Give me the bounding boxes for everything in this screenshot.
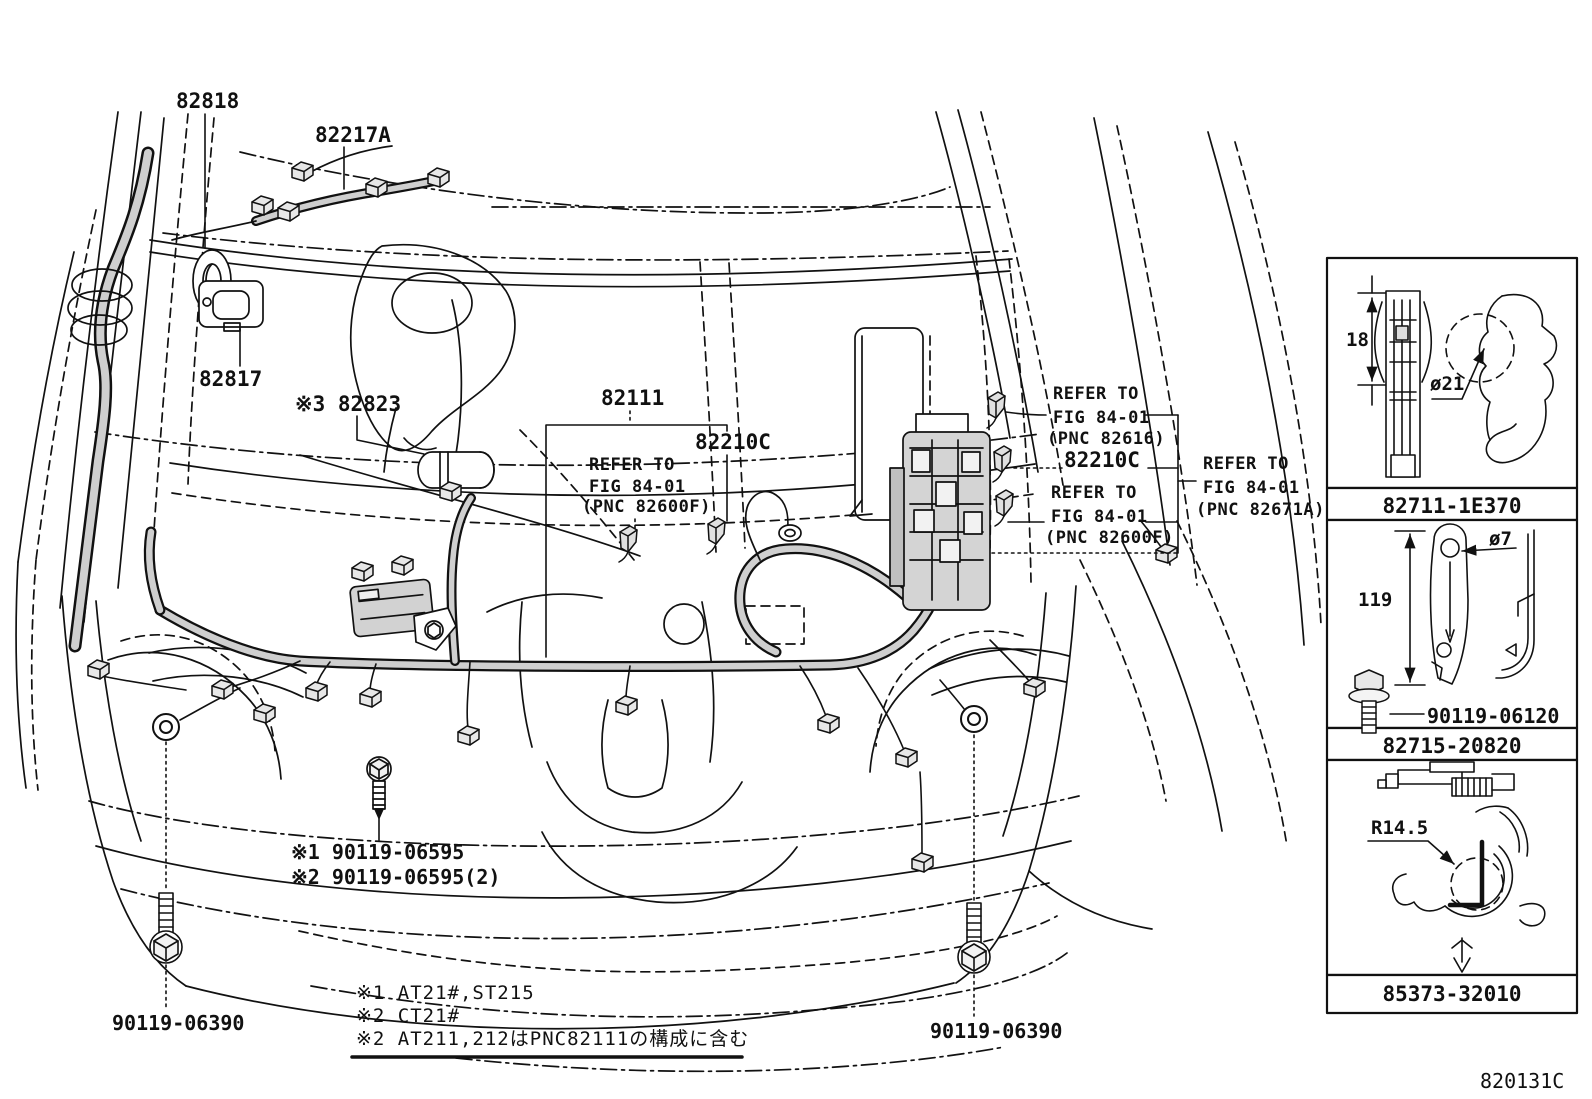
callout-82817: 82817 xyxy=(199,368,262,390)
connector-cube xyxy=(360,688,381,707)
ground-screw-right xyxy=(958,903,990,973)
ground-ring-left xyxy=(153,714,179,740)
refer-center-line3: (PNC 82600F) xyxy=(582,499,711,517)
ground-screw-left xyxy=(150,893,182,963)
connector-cube xyxy=(818,714,839,733)
clamp-82823 xyxy=(418,452,494,488)
dim-r145: R14.5 xyxy=(1371,819,1428,839)
panel-label-82715: 82715-20820 xyxy=(1327,734,1577,758)
dim-o21: ø21 xyxy=(1430,375,1464,395)
footnote-1: ※1 AT21#,ST215 xyxy=(356,984,535,1004)
connector-cube xyxy=(392,556,413,575)
connector-cube xyxy=(212,680,233,699)
page-code: 820131C xyxy=(1480,1071,1564,1092)
footnote-2: ※2 CT21# xyxy=(356,1007,460,1027)
connector-cube xyxy=(352,562,373,581)
refer-outer-line1: REFER TO xyxy=(1203,456,1289,474)
body-clip xyxy=(619,526,637,562)
refer-center-line2: FIG 84-01 xyxy=(589,479,686,497)
body-clip xyxy=(995,490,1013,526)
center-bolt xyxy=(367,757,391,818)
refer-bottom-line2: FIG 84-01 xyxy=(1051,509,1148,527)
refer-outer-line2: FIG 84-01 xyxy=(1203,480,1300,498)
connector-cube xyxy=(254,704,275,723)
branch-wires xyxy=(102,520,1162,855)
connector-cube xyxy=(616,696,637,715)
footnote-3: ※2 AT211,212はPNC82111の構成に含む xyxy=(356,1030,749,1050)
callout-82210c: 82210C xyxy=(695,431,771,453)
callout-82823: ※3 82823 xyxy=(295,393,401,415)
connector-cube xyxy=(1024,678,1045,697)
parts-diagram-page: 82818 82217A 82817 ※3 82823 82111 82210C… xyxy=(0,0,1592,1099)
bolt-note-2: ※2 90119-06595(2) xyxy=(291,867,500,888)
refer-outer-line3: (PNC 82671A) xyxy=(1196,502,1325,520)
connector-cube xyxy=(896,748,917,767)
refer-top-line2: FIG 84-01 xyxy=(1053,410,1150,428)
callout-82818: 82818 xyxy=(176,90,239,112)
sub-harness-82217a xyxy=(172,146,449,240)
body-clip xyxy=(987,392,1005,428)
callout-82111: 82111 xyxy=(601,387,664,409)
callout-82217a: 82217A xyxy=(315,124,391,146)
body-clip xyxy=(993,446,1011,482)
connector-cube xyxy=(306,682,327,701)
ground-label-right: 90119-06390 xyxy=(930,1021,1062,1042)
refer-bottom-line3: (PNC 82600F) xyxy=(1045,530,1174,548)
protector-82817 xyxy=(199,281,263,331)
dim-o7: ø7 xyxy=(1489,530,1512,550)
panel-label-82711: 82711-1E370 xyxy=(1327,494,1577,518)
panel-bolt-label: 90119-06120 xyxy=(1427,706,1559,727)
panel-label-85373: 85373-32010 xyxy=(1327,982,1577,1006)
refer-top-line3: (PNC 82616) xyxy=(1047,431,1165,449)
dim-119: 119 xyxy=(1358,591,1392,611)
connector-cube xyxy=(458,726,479,745)
ground-ring-right xyxy=(961,706,987,732)
bolt-note-1: ※1 90119-06595 xyxy=(291,842,464,863)
callout-82210c-right: 82210C xyxy=(1064,449,1140,471)
dim-18: 18 xyxy=(1346,331,1369,351)
refer-bottom-line1: REFER TO xyxy=(1051,485,1137,503)
ground-label-left: 90119-06390 xyxy=(112,1013,244,1034)
diagram-line-art xyxy=(0,0,1592,1099)
refer-center-line1: REFER TO xyxy=(589,457,675,475)
refer-top-line1: REFER TO xyxy=(1053,386,1139,404)
